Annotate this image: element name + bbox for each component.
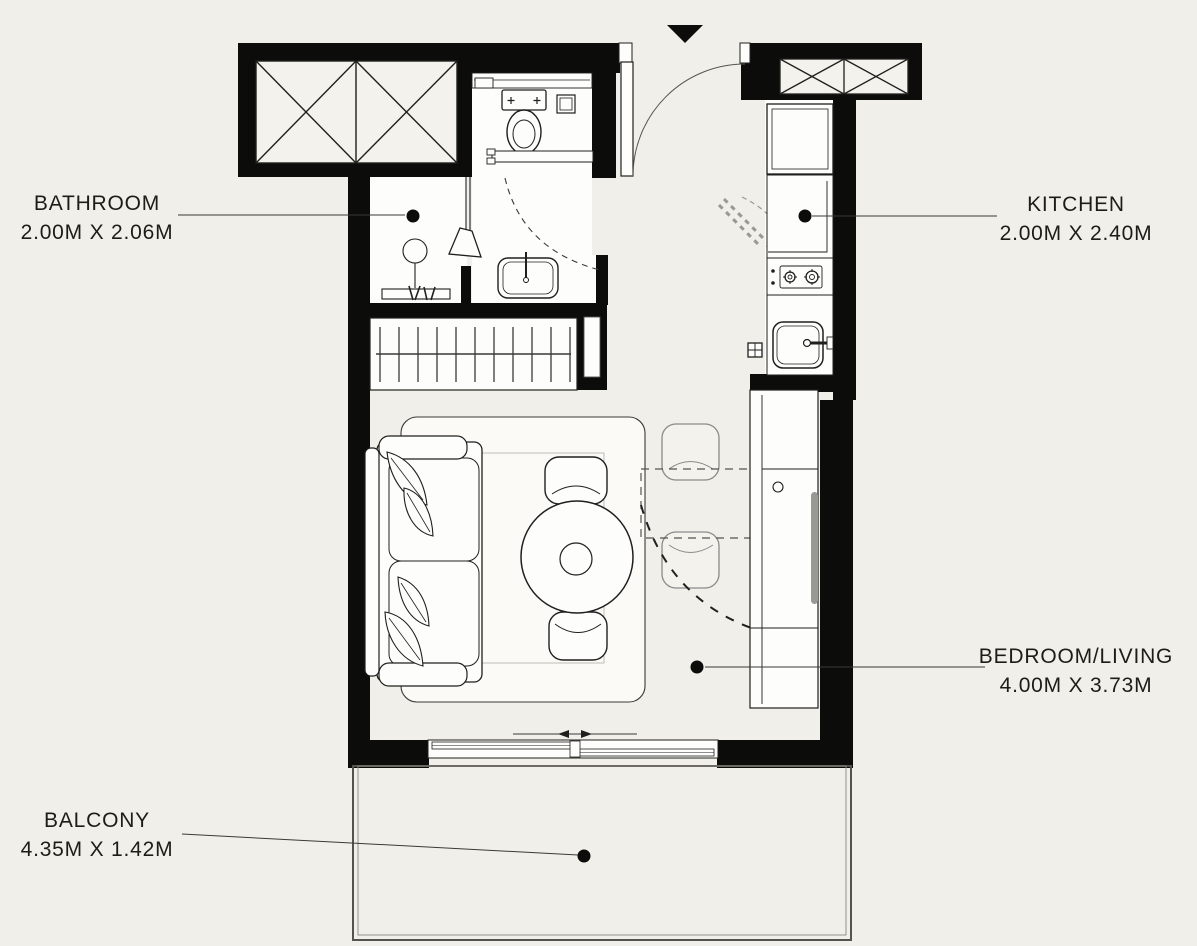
wall-kitchen-bottom	[750, 374, 833, 392]
wall-top-wc	[456, 43, 620, 73]
wall-stub-vanity	[596, 255, 608, 305]
room-dimensions: 2.00M X 2.06M	[21, 218, 174, 247]
chair-spare	[662, 424, 719, 480]
room-label-balcony: BALCONY 4.35M X 1.42M	[21, 806, 174, 864]
chair	[549, 612, 607, 660]
entry-door-leaf	[621, 62, 633, 176]
wall-shower-stub	[461, 266, 471, 303]
table-center	[560, 543, 592, 575]
room-name: BALCONY	[21, 806, 174, 835]
shaft-hatch-right	[780, 59, 908, 94]
room-dimensions: 4.00M X 3.73M	[979, 671, 1173, 700]
wall-bottom-right	[717, 740, 853, 768]
slide-direction-arrow	[513, 730, 637, 738]
floor-plan-drawing	[0, 0, 1197, 946]
window-pane-right	[811, 492, 818, 604]
shaft-hatch-left	[256, 61, 457, 163]
room-marker-bedroom-living	[691, 661, 704, 674]
wall-right-lower	[820, 400, 853, 768]
room-name: BATHROOM	[21, 189, 174, 218]
balcony-outline	[353, 766, 851, 940]
wall-bottom-left	[348, 740, 429, 768]
sliding-door	[428, 730, 718, 758]
room-name: BEDROOM/LIVING	[979, 642, 1173, 671]
leader-balcony	[182, 834, 578, 855]
sofa-bed	[365, 436, 482, 686]
chair-spare	[662, 532, 719, 588]
door-frame-cap-right	[740, 43, 750, 63]
closet	[370, 317, 600, 390]
room-marker-bathroom	[407, 210, 420, 223]
entrance-marker-icon	[667, 25, 703, 43]
floor-plan-page: BATHROOM 2.00M X 2.06M KITCHEN 2.00M X 2…	[0, 0, 1197, 946]
kitchen-fixtures	[748, 104, 833, 375]
room-marker-kitchen	[799, 210, 812, 223]
wardrobe	[750, 390, 818, 708]
entrance	[619, 25, 750, 176]
room-dimensions: 4.35M X 1.42M	[21, 835, 174, 864]
chair	[545, 457, 607, 504]
entry-door-swing-arc	[633, 64, 745, 176]
towel-rail	[492, 151, 593, 162]
room-marker-balcony	[578, 850, 591, 863]
living-room	[365, 390, 818, 708]
pocket-door-slot	[584, 317, 600, 377]
room-label-bathroom: BATHROOM 2.00M X 2.06M	[21, 189, 174, 247]
wardrobe-knob	[773, 482, 783, 492]
room-dimensions: 2.00M X 2.40M	[1000, 219, 1153, 248]
wall-wc-right	[592, 73, 616, 178]
room-label-bedroom-living: BEDROOM/LIVING 4.00M X 3.73M	[979, 642, 1173, 700]
room-label-kitchen: KITCHEN 2.00M X 2.40M	[1000, 190, 1153, 248]
wall-right-upper	[833, 92, 856, 400]
door-frame-cap-left	[619, 43, 632, 63]
bathroom-floor	[370, 177, 467, 304]
room-name: KITCHEN	[1000, 190, 1153, 219]
